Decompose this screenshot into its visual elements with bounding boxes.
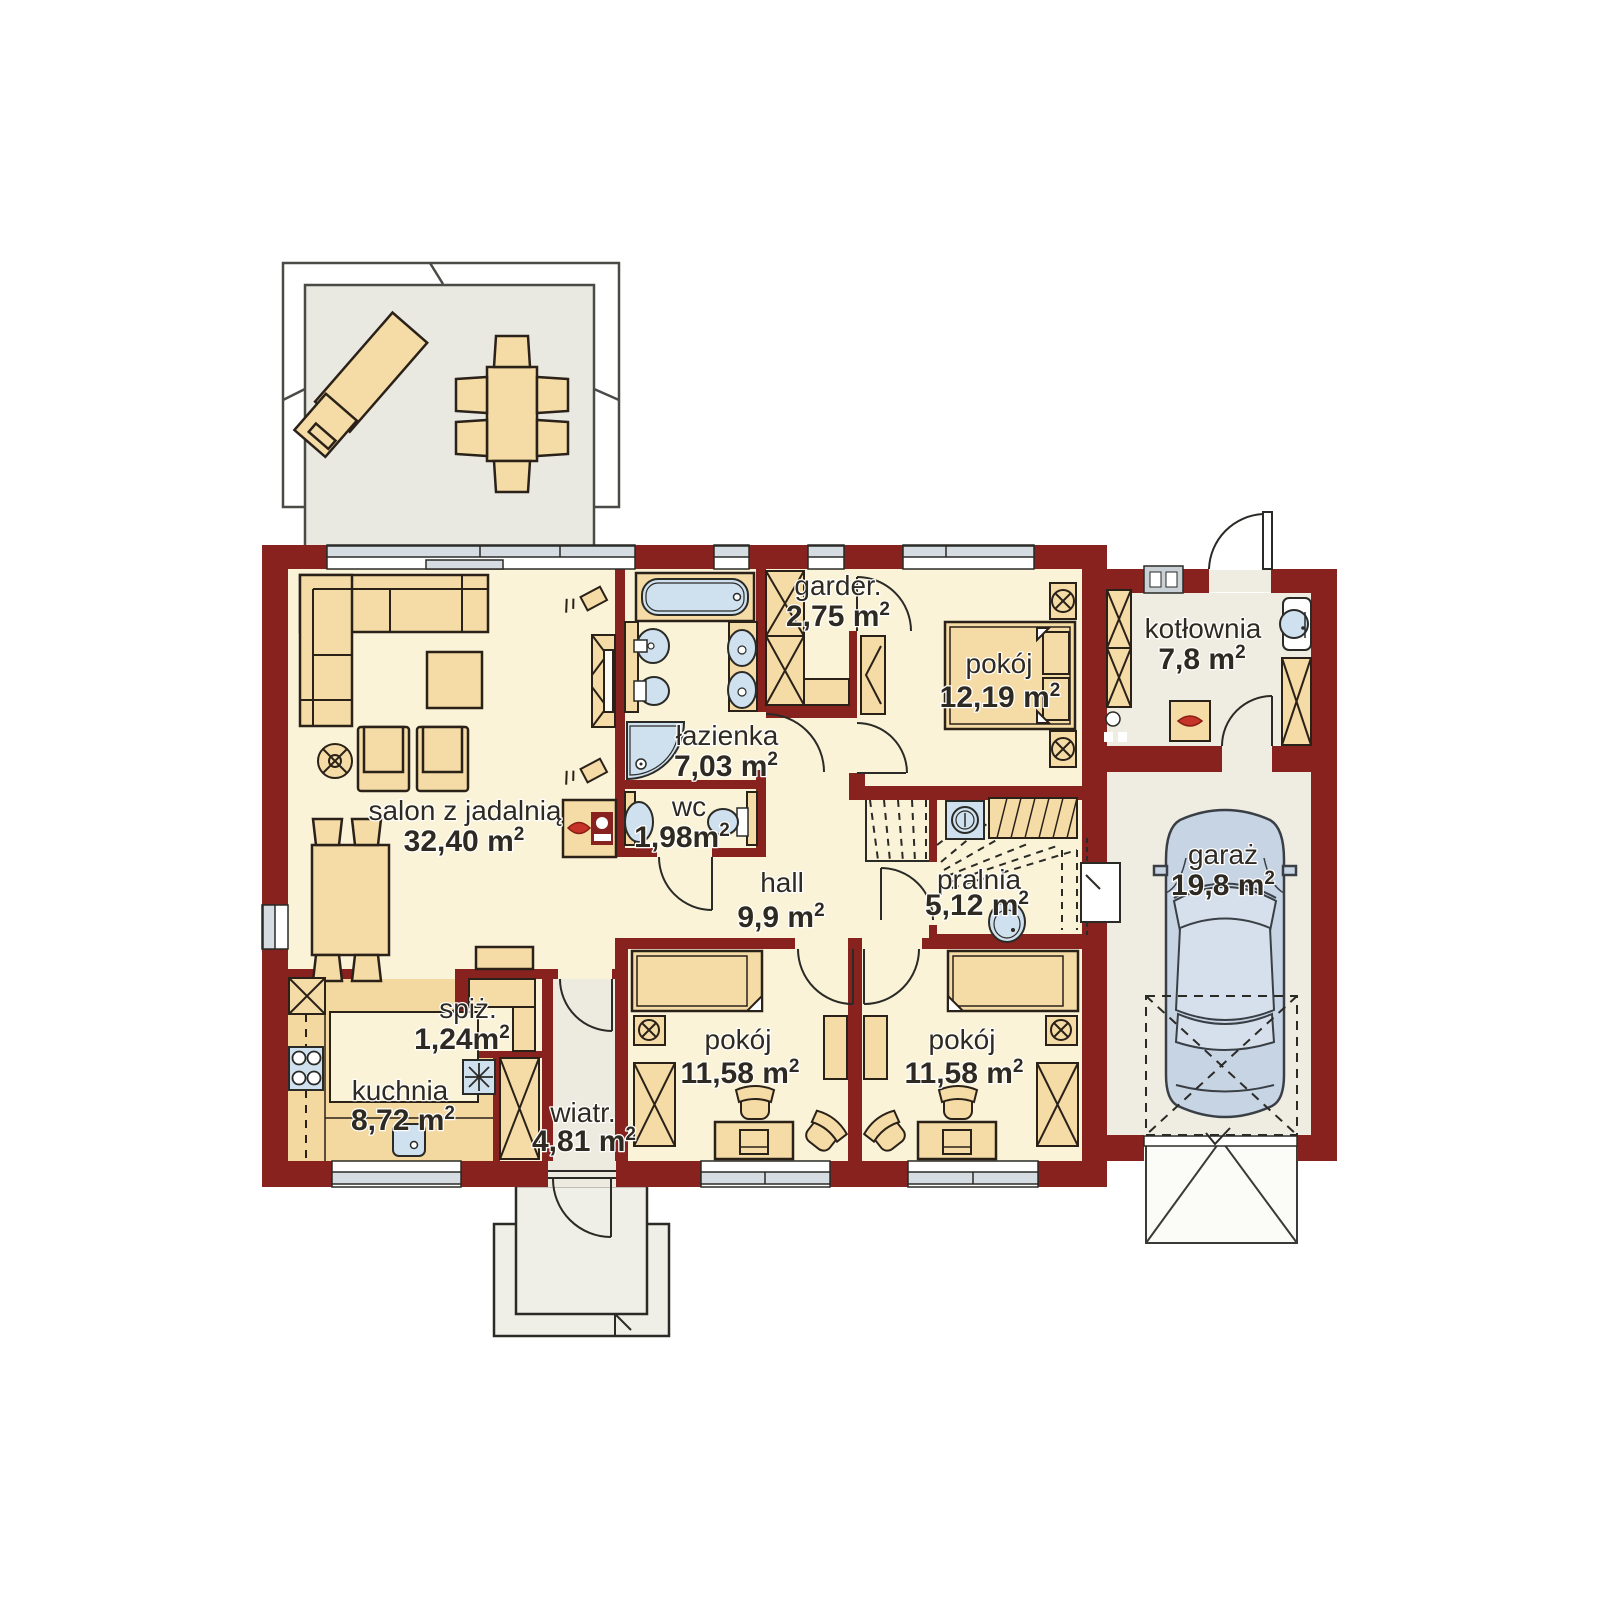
- svg-text:garder.: garder.: [794, 570, 881, 601]
- svg-text:12,19 m2: 12,19 m2: [940, 680, 1061, 714]
- svg-text:1,24m2: 1,24m2: [414, 1022, 510, 1056]
- svg-text:9,9 m2: 9,9 m2: [737, 900, 824, 934]
- svg-text:wiatr.: wiatr.: [549, 1097, 615, 1128]
- svg-text:32,40 m2: 32,40 m2: [404, 824, 525, 858]
- svg-text:7,03 m2: 7,03 m2: [674, 749, 778, 783]
- svg-text:salon z jadalnią: salon z jadalnią: [368, 795, 561, 826]
- svg-text:4,81 m2: 4,81 m2: [532, 1124, 636, 1158]
- svg-text:garaż: garaż: [1188, 839, 1258, 870]
- svg-text:kotłownia: kotłownia: [1145, 613, 1262, 644]
- svg-text:8,72 m2: 8,72 m2: [351, 1103, 455, 1137]
- svg-text:wc: wc: [671, 791, 706, 822]
- svg-text:pokój: pokój: [705, 1024, 772, 1055]
- svg-text:pokój: pokój: [929, 1024, 996, 1055]
- svg-text:7,8 m2: 7,8 m2: [1158, 642, 1245, 676]
- svg-text:19,8 m2: 19,8 m2: [1171, 868, 1275, 902]
- svg-text:łazienka: łazienka: [676, 720, 779, 751]
- svg-text:11,58 m2: 11,58 m2: [904, 1056, 1023, 1090]
- svg-text:spiż.: spiż.: [439, 993, 497, 1024]
- svg-text:hall: hall: [760, 867, 804, 898]
- svg-text:11,58 m2: 11,58 m2: [680, 1056, 799, 1090]
- svg-text:kuchnia: kuchnia: [352, 1075, 449, 1106]
- svg-text:5,12 m2: 5,12 m2: [925, 888, 1029, 922]
- svg-text:1,98m2: 1,98m2: [634, 820, 730, 854]
- svg-text:pokój: pokój: [966, 648, 1033, 679]
- svg-text:2,75 m2: 2,75 m2: [786, 599, 890, 633]
